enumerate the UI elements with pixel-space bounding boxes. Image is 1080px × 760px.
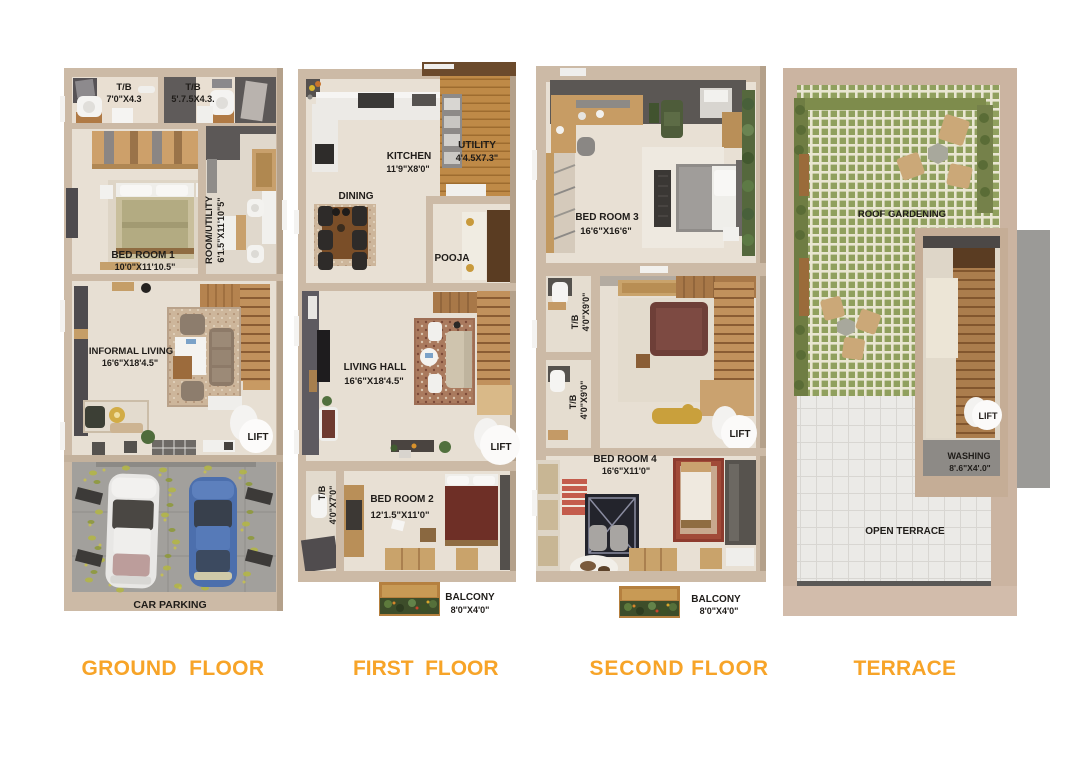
svg-text:LIFT: LIFT: [247, 432, 268, 443]
svg-text:DINING: DINING: [339, 191, 374, 202]
svg-text:5'.7.5X4.3.: 5'.7.5X4.3.: [171, 94, 214, 104]
svg-text:LIFT: LIFT: [979, 411, 998, 421]
svg-text:16'6"X18'4.5": 16'6"X18'4.5": [102, 358, 158, 368]
svg-text:11'9"X8'0": 11'9"X8'0": [386, 164, 429, 174]
svg-text:6'1.5"X11'10"5": 6'1.5"X11'10"5": [216, 197, 226, 262]
svg-text:ROOF GARDENING: ROOF GARDENING: [858, 209, 946, 220]
svg-text:12'1.5"X11'0": 12'1.5"X11'0": [371, 510, 430, 521]
svg-text:UTILITY: UTILITY: [458, 140, 496, 151]
svg-text:LIVING HALL: LIVING HALL: [344, 362, 407, 373]
svg-text:GROUND FLOOR: GROUND FLOOR: [82, 657, 265, 680]
svg-text:T/B: T/B: [185, 82, 200, 93]
svg-text:T/B: T/B: [116, 82, 131, 93]
svg-text:8'0"X4'0": 8'0"X4'0": [700, 606, 739, 616]
svg-text:BED ROOM 1: BED ROOM 1: [111, 250, 175, 261]
svg-text:16'6"X16'6": 16'6"X16'6": [580, 226, 632, 237]
svg-text:BED ROOM 3: BED ROOM 3: [575, 212, 639, 223]
svg-text:BALCONY: BALCONY: [691, 594, 741, 605]
svg-text:T/B: T/B: [317, 485, 327, 500]
svg-text:4'0"X9'0": 4'0"X9'0": [581, 293, 591, 332]
svg-text:BED ROOM 4: BED ROOM 4: [593, 454, 657, 465]
svg-text:FIRST FLOOR: FIRST FLOOR: [353, 657, 499, 680]
svg-text:WASHING: WASHING: [947, 451, 990, 461]
svg-text:4'4.5X7.3": 4'4.5X7.3": [456, 153, 498, 163]
svg-text:ROOM/UTILITY: ROOM/UTILITY: [204, 195, 215, 264]
svg-text:10'0"X11'10.5": 10'0"X11'10.5": [115, 262, 176, 272]
svg-text:OPEN TERRACE: OPEN TERRACE: [865, 526, 945, 537]
svg-text:CAR PARKING: CAR PARKING: [133, 599, 206, 611]
svg-text:LIFT: LIFT: [729, 429, 750, 440]
svg-text:T/B: T/B: [568, 394, 578, 409]
svg-text:INFORMAL LIVING: INFORMAL LIVING: [89, 346, 173, 357]
svg-text:KITCHEN: KITCHEN: [387, 151, 431, 162]
svg-text:BALCONY: BALCONY: [445, 592, 495, 603]
svg-text:T/B: T/B: [570, 314, 580, 329]
svg-text:8'.6"X4'.0": 8'.6"X4'.0": [949, 463, 990, 473]
svg-text:16'6"X18'4.5": 16'6"X18'4.5": [344, 376, 404, 387]
svg-text:POOJA: POOJA: [434, 253, 469, 264]
svg-text:7'0"X4.3: 7'0"X4.3: [107, 94, 142, 104]
svg-text:8'0"X4'0": 8'0"X4'0": [451, 605, 490, 615]
svg-text:TERRACE: TERRACE: [854, 657, 957, 680]
svg-text:BED ROOM 2: BED ROOM 2: [370, 494, 434, 505]
svg-text:SECOND FLOOR: SECOND FLOOR: [590, 657, 769, 680]
svg-text:LIFT: LIFT: [490, 442, 511, 453]
svg-text:4'0"X9'0": 4'0"X9'0": [579, 381, 589, 420]
svg-text:4'0"X7'0": 4'0"X7'0": [328, 486, 338, 525]
svg-text:16'6"X11'0": 16'6"X11'0": [602, 466, 650, 476]
